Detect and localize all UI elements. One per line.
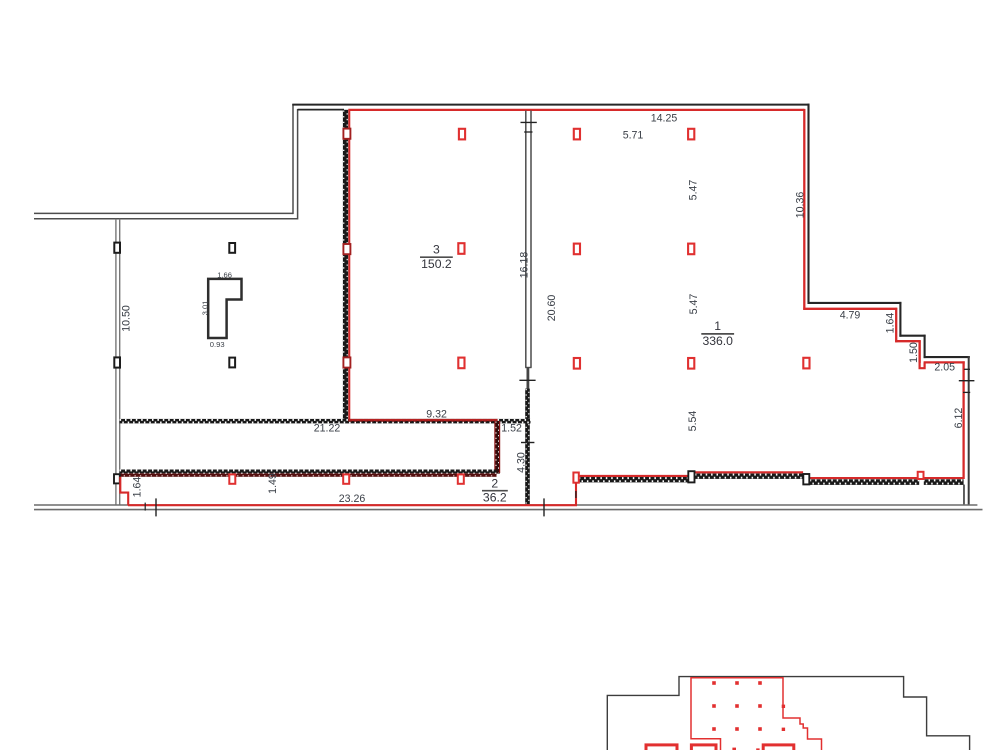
svg-text:6.12: 6.12 — [953, 408, 965, 429]
svg-text:14.25: 14.25 — [651, 112, 678, 124]
svg-text:1: 1 — [714, 319, 721, 333]
svg-text:5.47: 5.47 — [688, 294, 700, 315]
svg-text:1.66: 1.66 — [217, 271, 232, 280]
svg-text:21.22: 21.22 — [314, 422, 341, 434]
svg-text:1.64: 1.64 — [131, 477, 143, 498]
svg-text:1.52: 1.52 — [501, 422, 522, 434]
svg-text:4.30: 4.30 — [515, 452, 527, 473]
svg-text:0.93: 0.93 — [210, 340, 225, 349]
svg-text:3: 3 — [433, 242, 440, 256]
svg-text:10.36: 10.36 — [794, 192, 806, 219]
svg-text:10.50: 10.50 — [120, 305, 132, 332]
svg-text:3.01: 3.01 — [200, 301, 209, 316]
svg-text:5.54: 5.54 — [687, 411, 699, 432]
svg-text:9.32: 9.32 — [426, 409, 447, 421]
svg-text:20.60: 20.60 — [546, 295, 558, 322]
svg-text:1.49: 1.49 — [267, 473, 279, 494]
svg-text:5.47: 5.47 — [687, 180, 699, 201]
svg-text:150.2: 150.2 — [421, 257, 452, 271]
svg-text:36.2: 36.2 — [483, 491, 507, 505]
svg-text:23.26: 23.26 — [339, 493, 366, 505]
svg-text:4.79: 4.79 — [840, 309, 861, 321]
svg-text:16.18: 16.18 — [518, 252, 530, 279]
svg-text:1.50: 1.50 — [908, 342, 920, 363]
svg-text:336.0: 336.0 — [702, 334, 733, 348]
svg-text:1.64: 1.64 — [885, 313, 897, 334]
svg-text:5.71: 5.71 — [623, 129, 644, 141]
svg-text:2: 2 — [491, 476, 498, 490]
svg-text:2.05: 2.05 — [934, 361, 955, 373]
